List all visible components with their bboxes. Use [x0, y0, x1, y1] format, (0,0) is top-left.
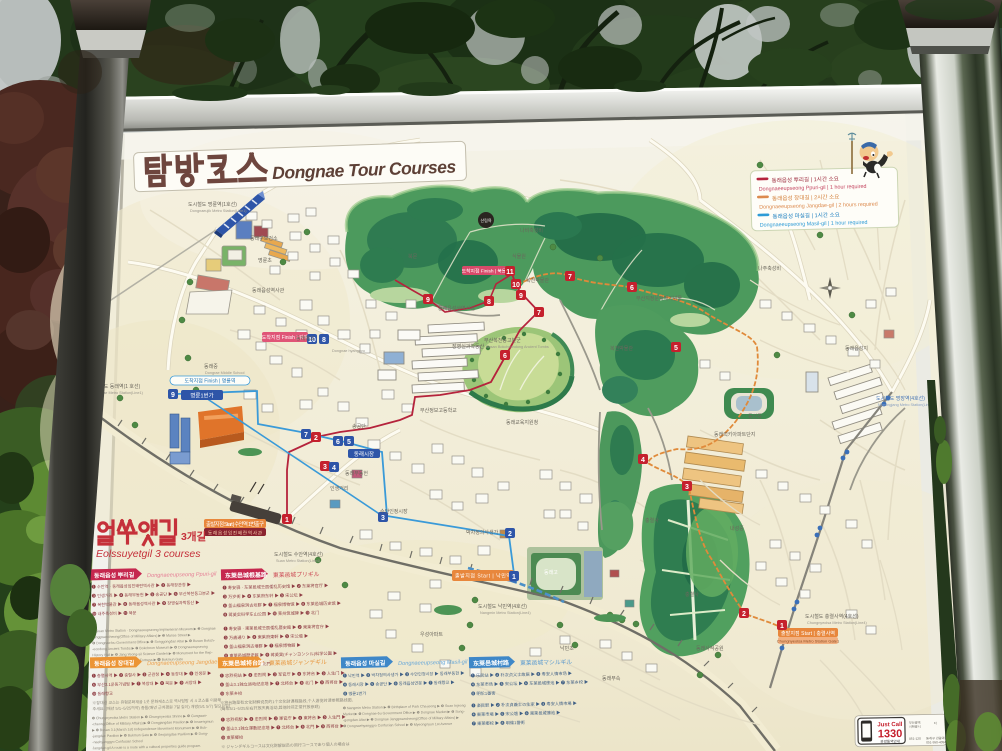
svg-text:도시철도 낙민역(4호선): 도시철도 낙민역(4호선) [478, 603, 527, 610]
svg-text:2: 2 [742, 611, 746, 618]
svg-text:도착지점 Finish | 명륜역: 도착지점 Finish | 명륜역 [184, 378, 235, 385]
svg-text:도시철도 명장역(4호선): 도시철도 명장역(4호선) [876, 395, 925, 402]
svg-text:도시철도 명륜역(1호선): 도시철도 명륜역(1호선) [188, 201, 237, 208]
svg-text:051-120: 051-120 [909, 737, 921, 741]
svg-text:출발지점 Start | 충렬사역: 출발지점 Start | 충렬사역 [781, 630, 835, 637]
svg-text:복천박물관: 복천박물관 [610, 345, 633, 352]
svg-text:동래교육지원청: 동래교육지원청 [506, 419, 538, 426]
svg-text:충렬사: 충렬사 [685, 591, 699, 598]
svg-text:1: 1 [285, 517, 289, 524]
svg-text:부산정보고등학교: 부산정보고등학교 [420, 407, 457, 414]
svg-text:7: 7 [537, 310, 541, 317]
svg-text:동래고: 동래고 [544, 569, 558, 576]
svg-text:동신중: 동신중 [748, 413, 762, 420]
svg-text:Busan Bokcheondong Ancient Tom: Busan Bokcheondong Ancient Tombs [486, 345, 549, 349]
svg-text:동래사적공원: 동래사적공원 [696, 645, 724, 652]
svg-text:3개길: 3개길 [181, 530, 206, 543]
svg-text:9: 9 [171, 392, 175, 399]
svg-text:낙민초: 낙민초 [560, 645, 574, 652]
svg-text:Suan Metro Station(Line4): Suan Metro Station(Line4) [276, 559, 321, 563]
svg-text:5: 5 [347, 439, 351, 446]
svg-text:동래부동헌: 동래부동헌 [345, 470, 368, 477]
svg-text:박차정의사생가: 박차정의사생가 [466, 529, 499, 536]
svg-text:산림욕: 산림욕 [480, 217, 491, 223]
svg-text:동래부속: 동래부속 [602, 675, 621, 682]
svg-text:충렬사: 충렬사 [645, 517, 659, 524]
svg-text:9: 9 [426, 297, 430, 304]
svg-text:Chungnyeolsa Metro Station(Lin: Chungnyeolsa Metro Station(Line4) [807, 621, 867, 625]
svg-text:Chungnyeolsa Metro Station Gat: Chungnyeolsa Metro Station Gate1 [777, 639, 840, 644]
svg-text:도착지점 Finish | 북문: 도착지점 Finish | 북문 [462, 268, 507, 275]
svg-text:6: 6 [503, 353, 507, 360]
svg-text:부산복천동고분군: 부산복천동고분군 [484, 337, 521, 344]
svg-text:3: 3 [323, 464, 327, 471]
svg-text:2: 2 [314, 435, 318, 442]
svg-text:Dongnae hyanggyo: Dongnae hyanggyo [332, 349, 365, 353]
svg-text:Nangmin Metro Station(Line4): Nangmin Metro Station(Line4) [480, 611, 531, 615]
svg-text:동래향교: 동래향교 [296, 335, 315, 342]
svg-text:송공단: 송공단 [352, 423, 366, 430]
svg-text:Dongrae Middle School: Dongrae Middle School [205, 371, 245, 375]
svg-text:동래읍성지: 동래읍성지 [845, 345, 868, 352]
svg-text:4: 4 [332, 465, 336, 472]
svg-text:1: 1 [780, 623, 784, 630]
svg-text:10: 10 [512, 282, 520, 289]
svg-text:8: 8 [487, 299, 491, 306]
svg-text:복천박물관: 복천박물관 [526, 277, 549, 284]
svg-text:7: 7 [304, 432, 308, 439]
svg-text:1: 1 [512, 574, 516, 581]
svg-text:5: 5 [674, 345, 678, 352]
svg-text:Myeongjang Metro Station(Line4: Myeongjang Metro Station(Line4) [878, 403, 935, 407]
svg-text:3: 3 [685, 484, 689, 491]
svg-text:출발지점 Start | 낙민역: 출발지점 Start | 낙민역 [455, 573, 511, 580]
svg-text:동래읍성역사관: 동래읍성역사관 [252, 287, 285, 294]
svg-text:동래읍성임진왜란역사관: 동래읍성임진왜란역사관 [208, 530, 262, 537]
svg-text:3: 3 [381, 515, 385, 522]
svg-text:11: 11 [506, 269, 514, 276]
svg-text:우성아파트: 우성아파트 [420, 631, 443, 638]
svg-text:4: 4 [641, 457, 645, 464]
svg-text:동래중: 동래중 [204, 363, 218, 370]
svg-text:동래구보건소: 동래구보건소 [250, 235, 278, 242]
svg-text:6: 6 [336, 439, 340, 446]
svg-text:나주축성비: 나주축성비 [758, 265, 781, 272]
svg-text:다: 다 [934, 720, 937, 725]
svg-text:7: 7 [568, 274, 572, 281]
svg-text:1330: 1330 [878, 728, 903, 740]
svg-text:8: 8 [322, 337, 326, 344]
svg-text:식물원: 식물원 [512, 253, 526, 260]
svg-text:6: 6 [630, 285, 634, 292]
svg-text:부산지정문화재기념물: 부산지정문화재기념물 [636, 295, 682, 302]
svg-text:도시철도 충렬사역(4호선): 도시철도 충렬사역(4호선) [805, 613, 859, 620]
svg-text:동래시장: 동래시장 [354, 450, 374, 458]
svg-text:관광통역안내: 관광통역안내 [880, 739, 900, 744]
svg-text:도시철도 수안역(4호선): 도시철도 수안역(4호선) [274, 551, 323, 558]
svg-text:동래럭키아파트단지: 동래럭키아파트단지 [714, 431, 755, 438]
svg-text:동래읍성상역사실: 동래읍성상역사실 [438, 305, 475, 312]
svg-text:2: 2 [508, 531, 512, 538]
svg-text:장영실과학동산: 장영실과학동산 [452, 343, 485, 350]
svg-text:명륜1번가: 명륜1번가 [190, 392, 213, 400]
svg-text:출발지점 Start | 수안역 1번출구: 출발지점 Start | 수안역 1번출구 [206, 520, 264, 528]
svg-text:내성중: 내성중 [730, 525, 744, 532]
svg-text:명륜초: 명륜초 [258, 257, 272, 264]
svg-text:Eolssuyetgil 3 courses: Eolssuyetgil 3 courses [96, 548, 201, 560]
svg-text:시환광시: 시환광시 [909, 724, 921, 729]
svg-text:Dongnaeujik Metro Station(Line: Dongnaeujik Metro Station(Line1) [190, 209, 247, 213]
svg-text:9: 9 [519, 293, 523, 300]
svg-text:나비축성비: 나비축성비 [520, 227, 543, 234]
svg-text:수안인정시장: 수안인정시장 [380, 508, 408, 515]
svg-text:인생거리: 인생거리 [330, 485, 348, 492]
svg-text:051-550-4094: 051-550-4094 [926, 740, 946, 744]
svg-text:북문: 북문 [408, 254, 418, 260]
